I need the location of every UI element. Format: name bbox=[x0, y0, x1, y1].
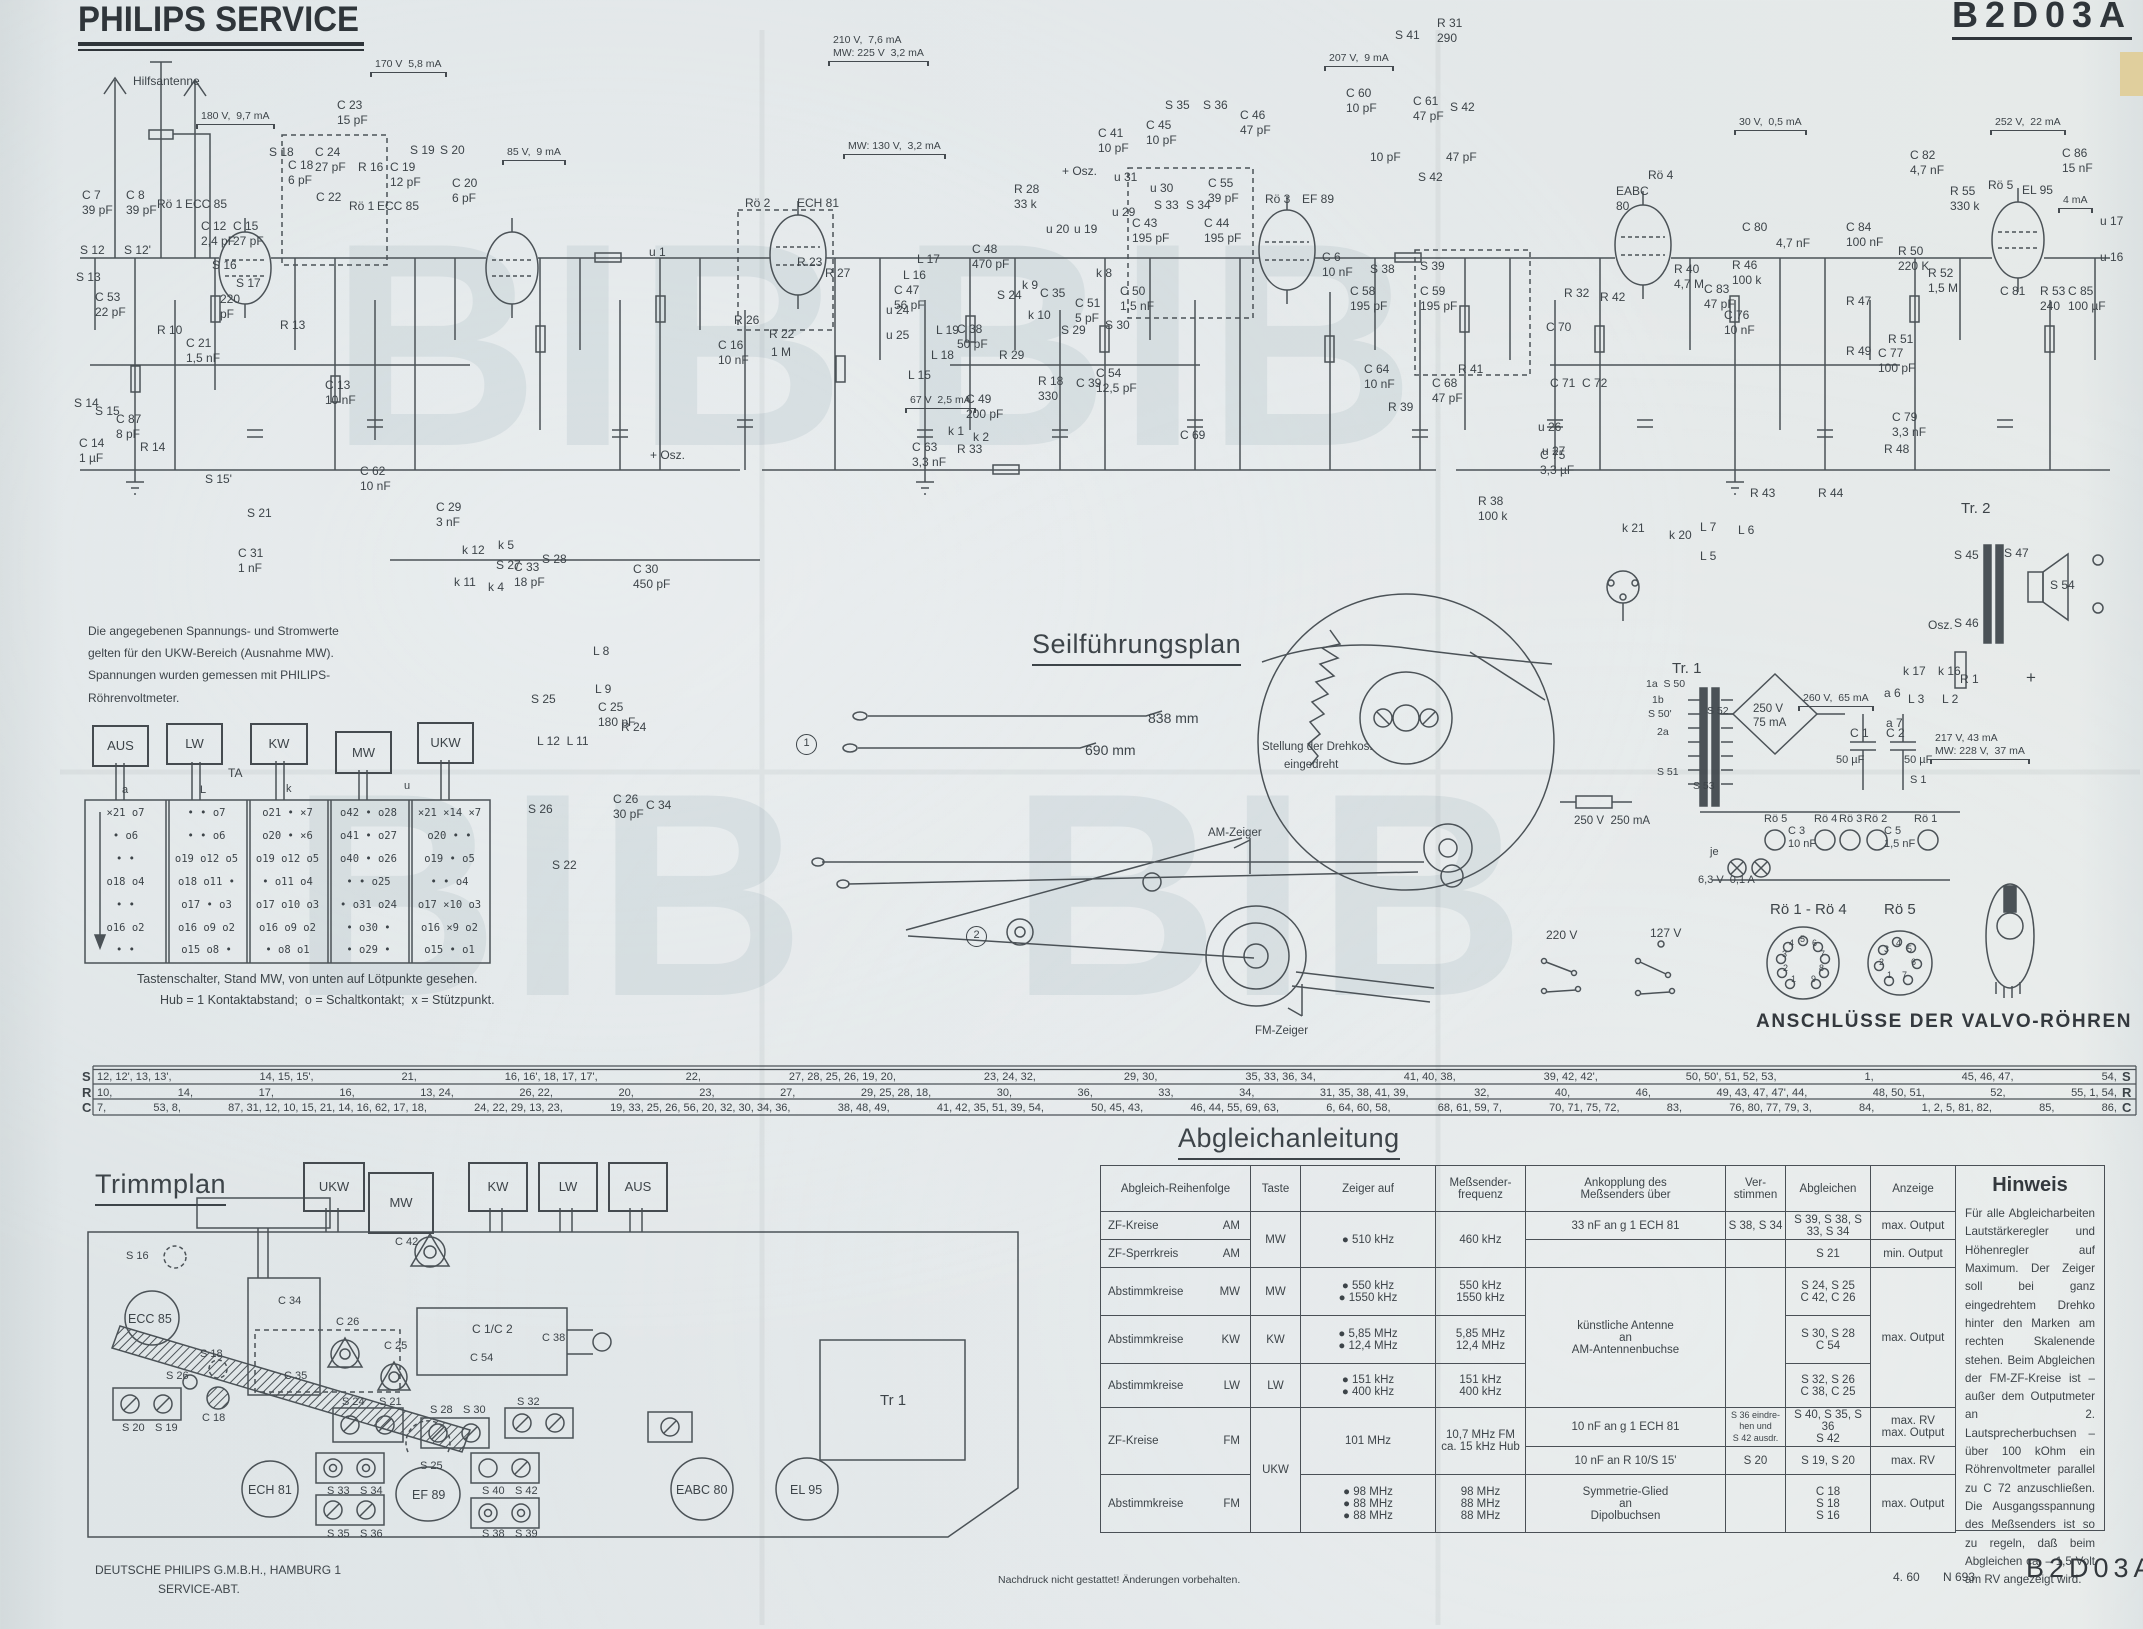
schematic-label: S 33 bbox=[1154, 198, 1179, 213]
schematic-label: S 15' bbox=[205, 472, 232, 487]
schematic-label: C 6010 pF bbox=[1346, 86, 1377, 115]
schematic-label: + Osz. bbox=[1062, 164, 1097, 179]
power-supply-drawing bbox=[1560, 545, 2103, 880]
alignment-table-cell: Anzeige bbox=[1871, 1166, 1956, 1212]
schematic-label: L 17 bbox=[917, 252, 940, 267]
schematic-label: Tr 1 bbox=[880, 1392, 906, 1410]
schematic-label: C 4510 pF bbox=[1146, 118, 1177, 147]
schematic-label: u 24 bbox=[886, 303, 909, 318]
alignment-table-cell bbox=[1726, 1268, 1786, 1408]
schematic-label: R 23 bbox=[797, 255, 822, 270]
schematic-label: 8 bbox=[1819, 963, 1824, 974]
strip-segment: 84, bbox=[1859, 1102, 1874, 1114]
schematic-label: u 25 bbox=[886, 328, 909, 343]
schematic-label: R 50220 K bbox=[1898, 244, 1929, 273]
schematic-label: C 70 bbox=[1546, 320, 1571, 335]
schematic-label: S 12' bbox=[124, 243, 151, 258]
alignment-table-cell: KW bbox=[1251, 1316, 1301, 1364]
schematic-label: Rö 1 bbox=[1914, 813, 1937, 826]
schematic-label: R 29 bbox=[999, 348, 1024, 363]
alignment-table-cell: 10 nF an g 1 ECH 81 bbox=[1526, 1408, 1726, 1447]
schematic-label: S 51 bbox=[1657, 766, 1679, 779]
schematic-label: 690 mm bbox=[1085, 742, 1136, 759]
alignment-table-cell: MW bbox=[1251, 1212, 1301, 1268]
strip-segment: 70, 71, 75, 72, bbox=[1549, 1102, 1619, 1114]
schematic-label: C 515 pF bbox=[1075, 296, 1100, 325]
schematic-label: C 54 bbox=[470, 1352, 493, 1365]
alignment-table-cell: 10,7 MHz FMca. 15 kHz Hub bbox=[1436, 1408, 1526, 1475]
schematic-label: 6 bbox=[1812, 938, 1817, 949]
switch-contact-row: o20 • ×6 bbox=[262, 830, 313, 842]
strip-segment: 48, 50, 51, bbox=[1873, 1087, 1925, 1099]
alignment-table-cell: ● 550 kHz● 1550 kHz bbox=[1301, 1268, 1436, 1316]
footer-company: SERVICE-ABT. bbox=[158, 1582, 240, 1597]
strip-segment: 26, 22, bbox=[519, 1087, 553, 1099]
logo-text: PHILIPS SERVICE bbox=[78, 0, 359, 40]
schematic-label: S 50' bbox=[1648, 708, 1672, 721]
schematic-label: R 32 bbox=[1564, 286, 1589, 301]
trimm-box-aus: AUS bbox=[608, 1162, 668, 1212]
alignment-table-cell bbox=[1726, 1475, 1786, 1533]
strip-segment: 33, bbox=[1158, 1087, 1173, 1099]
schematic-label: L 3 bbox=[1908, 692, 1924, 707]
strip-segment: 49, 43, 47, 47', 44, bbox=[1716, 1087, 1807, 1099]
schematic-label: k bbox=[286, 783, 292, 796]
schematic-label: S 22 bbox=[552, 858, 577, 873]
strip-segment: 1, 2, 5, 81, 82, bbox=[1922, 1102, 1992, 1114]
schematic-label: S 1 bbox=[1910, 774, 1927, 787]
alignment-table-cell: ● 151 kHz● 400 kHz bbox=[1301, 1364, 1436, 1408]
schematic-label: S 52 bbox=[1707, 705, 1729, 718]
strip-segment: 14, 15, 15', bbox=[260, 1071, 314, 1083]
strip-segment: 41, 42, 35, 51, 39, 54, bbox=[937, 1102, 1044, 1114]
switch-contact-row: o17 ×10 o3 bbox=[418, 899, 481, 911]
footer-print-number: N 693 bbox=[1943, 1570, 1975, 1585]
switch-contact-row: o15 • o1 bbox=[424, 944, 475, 956]
schematic-label: 260 V, 65 mA bbox=[1798, 692, 1874, 707]
schematic-label: S 25 bbox=[531, 692, 556, 707]
schematic-label: R 1 bbox=[1960, 672, 1979, 687]
schematic-label: S 19 bbox=[410, 143, 435, 158]
schematic-label: C 38 bbox=[542, 1332, 565, 1345]
schematic-label: L 9 bbox=[595, 682, 611, 697]
schematic-label: C 753,3 µF bbox=[1540, 448, 1574, 477]
schematic-label: C 25 bbox=[384, 1340, 407, 1353]
schematic-label: S 16 bbox=[212, 258, 237, 273]
alignment-table-cell: max. Output bbox=[1871, 1268, 1956, 1408]
schematic-label: 210 V, 7,6 mAMW: 225 V 3,2 mA bbox=[828, 34, 929, 62]
schematic-label: R 47 bbox=[1846, 294, 1871, 309]
schematic-label: C 633,3 nF bbox=[912, 440, 946, 469]
schematic-label: 5 bbox=[1800, 934, 1805, 945]
schematic-label: S 20 bbox=[122, 1422, 145, 1435]
schematic-label: C 1527 pF bbox=[233, 219, 264, 248]
schematic-label: R 46100 k bbox=[1732, 258, 1761, 287]
schematic-label: EL 95 bbox=[2022, 183, 2053, 198]
schematic-label: C 80 bbox=[1742, 220, 1767, 235]
alignment-table-cell: 460 kHz bbox=[1436, 1212, 1526, 1268]
schematic-label: 6 bbox=[1911, 957, 1916, 968]
alignment-table-cell: AbstimmkreiseLW bbox=[1101, 1364, 1251, 1408]
schematic-label: S 41 bbox=[1395, 28, 1420, 43]
schematic-label: R 33 bbox=[957, 442, 982, 457]
schematic-label: a 6 bbox=[1884, 686, 1901, 701]
schematic-label: R 51 bbox=[1888, 332, 1913, 347]
schematic-label: 85 V, 9 mA bbox=[502, 146, 566, 161]
schematic-label: R 44 bbox=[1818, 486, 1843, 501]
alignment-table-cell: ZF-SperrkreisAM bbox=[1101, 1240, 1251, 1268]
band-button-ukw: UKW bbox=[417, 722, 474, 764]
schematic-label: R 22 bbox=[769, 327, 794, 342]
schematic-label: C 26 bbox=[336, 1316, 359, 1329]
schematic-label: R 404,7 M bbox=[1674, 262, 1704, 291]
schematic-label: C 1610 nF bbox=[718, 338, 749, 367]
schematic-label: L 18 bbox=[931, 348, 954, 363]
schematic-label: k 12 bbox=[462, 543, 485, 558]
strip-segment: 50, 50', 51, 52, 53, bbox=[1686, 1071, 1777, 1083]
schematic-label: S 29 bbox=[1061, 323, 1086, 338]
schematic-label: C 8347 pF bbox=[1704, 282, 1735, 311]
alignment-table-cell: 5,85 MHz12,4 MHz bbox=[1436, 1316, 1526, 1364]
switch-caption: Tastenschalter, Stand MW, von unten auf … bbox=[137, 972, 478, 987]
strip-segment: 34, bbox=[1239, 1087, 1254, 1099]
strip-segment: 10, bbox=[97, 1087, 112, 1099]
strip-segment: 13, 24, bbox=[420, 1087, 454, 1099]
alignment-table-cell: künstliche AntenneanAM-Antennenbuchse bbox=[1526, 1268, 1726, 1408]
switch-contact-row: o41 • o27 bbox=[340, 830, 397, 842]
schematic-label: 207 V, 9 mA bbox=[1324, 52, 1394, 67]
schematic-label: C 141 µF bbox=[79, 436, 104, 465]
schematic-label: C 739 pF bbox=[82, 188, 113, 217]
strip-segment: 20, bbox=[618, 1087, 633, 1099]
alignment-table-cell bbox=[1526, 1240, 1726, 1268]
schematic-label: C 211,5 nF bbox=[186, 336, 220, 365]
schematic-label: k 17 bbox=[1903, 664, 1926, 679]
schematic-label: C 22 bbox=[316, 190, 341, 205]
alignment-table-cell: S 19, S 20 bbox=[1786, 1447, 1871, 1475]
switch-contact-row: • • o7 bbox=[188, 807, 226, 819]
schematic-label: S 45 bbox=[1954, 548, 1979, 563]
schematic-label: 3 bbox=[1782, 949, 1787, 960]
strip-segment: 35, 33, 36, 34, bbox=[1245, 1071, 1315, 1083]
alignment-table-cell: ● 98 MHz● 88 MHz● 88 MHz bbox=[1301, 1475, 1436, 1533]
switch-contact-row: • • bbox=[116, 899, 135, 911]
alignment-table-cell: Symmetrie-GliedanDipolbuchsen bbox=[1526, 1475, 1726, 1533]
schematic-label: 1 M bbox=[771, 345, 791, 360]
schematic-label: S 36 bbox=[360, 1528, 383, 1541]
schematic-label: EF 89 bbox=[412, 1488, 445, 1503]
schematic-label: 6,3 V 0,1 A bbox=[1698, 874, 1755, 887]
schematic-label: S 25 bbox=[420, 1460, 443, 1473]
schematic-label: S 38 bbox=[1370, 262, 1395, 277]
schematic-label: R 38100 k bbox=[1478, 494, 1507, 523]
schematic-label: C 5539 pF bbox=[1208, 176, 1239, 205]
band-button-aus: AUS bbox=[92, 725, 149, 767]
alignment-table-cell: max. Output bbox=[1871, 1475, 1956, 1533]
alignment-table-cell: AbstimmkreiseFM bbox=[1101, 1475, 1251, 1533]
schematic-label: k 11 bbox=[454, 575, 476, 590]
schematic-label: C 59195 pF bbox=[1420, 284, 1457, 313]
strip-key-right: S bbox=[2122, 1069, 2131, 1084]
schematic-label: S 42 bbox=[1418, 170, 1443, 185]
schematic-label: 47 pF bbox=[1446, 150, 1477, 165]
schematic-label: 1 bbox=[1887, 970, 1892, 981]
schematic-label: C 81 bbox=[2000, 284, 2025, 299]
schematic-label: S 35 bbox=[1165, 98, 1190, 113]
schematic-label: C 72 bbox=[1582, 376, 1607, 391]
schematic-label: 2 bbox=[966, 926, 987, 947]
strip-segment: 16, 16', 18, 17, 17', bbox=[505, 1071, 598, 1083]
alignment-table-cell: S 20 bbox=[1726, 1447, 1786, 1475]
alignment-table-cell: S 32, S 26C 38, C 25 bbox=[1786, 1364, 1871, 1408]
schematic-label: k 5 bbox=[498, 538, 514, 553]
schematic-label: ECH 81 bbox=[248, 1483, 292, 1498]
schematic-label: TA bbox=[228, 766, 242, 781]
strip-segment: 14, bbox=[178, 1087, 193, 1099]
alignment-table-cell: ● 5,85 MHz● 12,4 MHz bbox=[1301, 1316, 1436, 1364]
alignment-table-cell: 151 kHz400 kHz bbox=[1436, 1364, 1526, 1408]
alignment-table-cell: max. Output bbox=[1871, 1212, 1956, 1240]
schematic-label: C 793,3 nF bbox=[1892, 410, 1926, 439]
strip-segment: 83, bbox=[1667, 1102, 1682, 1114]
strip-segment: 23, 24, 32, bbox=[984, 1071, 1036, 1083]
schematic-label: C 34 bbox=[646, 798, 671, 813]
schematic-label: S 18 bbox=[200, 1348, 223, 1361]
schematic-label: R 13 bbox=[280, 318, 305, 333]
schematic-label: Rö 2 bbox=[745, 196, 770, 211]
schematic-label: L 5 bbox=[1700, 549, 1716, 564]
switch-contact-row: • • bbox=[116, 944, 135, 956]
strip-segment: 32, bbox=[1474, 1087, 1489, 1099]
switch-contact-row: • o31 o24 bbox=[340, 899, 397, 911]
section-title-seilfuehrungsplan: Seilführungsplan bbox=[1032, 628, 1241, 666]
switch-contact-row: • • o25 bbox=[346, 876, 390, 888]
schematic-label: S 38 bbox=[482, 1528, 505, 1541]
schematic-label: R 48 bbox=[1884, 442, 1909, 457]
switch-contact-row: ×21 o7 bbox=[107, 807, 145, 819]
schematic-label: a bbox=[122, 784, 128, 797]
schematic-label: R 31290 bbox=[1437, 16, 1462, 45]
switch-contact-row: o19 • o5 bbox=[424, 853, 475, 865]
schematic-label: S 36 bbox=[1203, 98, 1228, 113]
alignment-table-cell: max. RV bbox=[1871, 1447, 1956, 1475]
strip-segment: 16, bbox=[339, 1087, 354, 1099]
schematic-label: Tr. 2 bbox=[1961, 500, 1990, 518]
strip-segment: 55, 1, 54, bbox=[2071, 1087, 2117, 1099]
schematic-label: R 41 bbox=[1458, 362, 1483, 377]
alignment-table-cell: 33 nF an g 1 ECH 81 bbox=[1526, 1212, 1726, 1240]
schematic-label: S 16 bbox=[126, 1250, 149, 1263]
switch-contact-panel: ×21 o7• o6• •o18 o4• •o16 o2• •• • o7• •… bbox=[85, 802, 490, 962]
schematic-label: C 18 bbox=[202, 1412, 225, 1425]
schematic-label: 4 bbox=[1789, 938, 1794, 949]
footer-company: DEUTSCHE PHILIPS G.M.B.H., HAMBURG 1 bbox=[95, 1563, 341, 1578]
strip-segment: 21, bbox=[402, 1071, 417, 1083]
schematic-label: C 58195 pF bbox=[1350, 284, 1387, 313]
schematic-label: C 2 bbox=[1886, 726, 1905, 741]
switch-contact-row: o19 o12 o5 bbox=[256, 853, 319, 865]
tube-socket-group-label: Rö 5 bbox=[1884, 901, 1916, 919]
alignment-table-cell: Abgleich-Reihenfolge bbox=[1101, 1166, 1251, 1212]
antenna-icon bbox=[104, 62, 210, 258]
schematic-label: S 26 bbox=[166, 1370, 189, 1383]
strip-segment: 41, 40, 38, bbox=[1404, 1071, 1456, 1083]
service-manual-page: { "header": { "logo": "PHILIPS SERVICE",… bbox=[0, 0, 2143, 1629]
schematic-label: S 34 bbox=[1186, 198, 1211, 213]
switch-contact-column: • • o7• • o6o19 o12 o5o18 o11 •o17 • o3o… bbox=[166, 802, 247, 962]
alignment-table-cell: ZF-KreiseAM bbox=[1101, 1212, 1251, 1240]
strip-segment: 40, bbox=[1555, 1087, 1570, 1099]
band-button-mw: MW bbox=[335, 731, 392, 774]
schematic-label: S 12 bbox=[80, 243, 105, 258]
doc-code-bottom: B2D03A bbox=[2026, 1552, 2143, 1585]
schematic-label: C 6147 pF bbox=[1413, 94, 1444, 123]
schematic-label: C 5412,5 pF bbox=[1096, 366, 1137, 395]
schematic-label: k 20 bbox=[1669, 528, 1692, 543]
strip-key-right: R bbox=[2122, 1085, 2131, 1100]
schematic-label: 9 bbox=[1811, 974, 1816, 985]
schematic-label: C 824,7 nF bbox=[1910, 148, 1944, 177]
schematic-label: k 4 bbox=[488, 580, 504, 595]
schematic-label: Tr. 1 bbox=[1672, 660, 1701, 678]
schematic-label: S 20 bbox=[440, 143, 465, 158]
schematic-label: C 84100 nF bbox=[1846, 220, 1883, 249]
schematic-label: L bbox=[200, 784, 206, 797]
alignment-table-cell: 98 MHz88 MHz88 MHz bbox=[1436, 1475, 1526, 1533]
schematic-label: L 8 bbox=[593, 644, 609, 659]
schematic-label: R 27 bbox=[825, 266, 850, 281]
switch-contact-row: • • o4 bbox=[431, 876, 469, 888]
schematic-label: C 4647 pF bbox=[1240, 108, 1271, 137]
schematic-label: S 19 bbox=[155, 1422, 178, 1435]
section-title-trimmplan: Trimmplan bbox=[95, 1168, 226, 1206]
switch-contact-row: • o29 • bbox=[346, 944, 390, 956]
schematic-label: 170 V 5,8 mA bbox=[370, 58, 447, 73]
schematic-label: S 30 bbox=[463, 1404, 486, 1417]
schematic-label: 2 bbox=[1783, 963, 1788, 974]
schematic-label: FM-Zeiger bbox=[1255, 1024, 1308, 1038]
schematic-label: u bbox=[404, 780, 410, 793]
schematic-label: EL 95 bbox=[790, 1483, 822, 1498]
alignment-table-cell: Ankopplung desMeßsenders über bbox=[1526, 1166, 1726, 1212]
switch-contact-row: o16 o9 o2 bbox=[259, 922, 316, 934]
schematic-label: C 1 bbox=[1850, 726, 1869, 741]
alignment-table-cell: S 40, S 35, S 36S 42 bbox=[1786, 1408, 1871, 1447]
switch-contact-row: • o6 bbox=[113, 830, 138, 842]
schematic-label: u 20 bbox=[1046, 222, 1069, 237]
switch-contact-column: ×21 o7• o6• •o18 o4• •o16 o2• • bbox=[85, 802, 166, 962]
logo-underline bbox=[78, 49, 364, 51]
schematic-label: 2 bbox=[1879, 957, 1884, 968]
schematic-label: C 71 bbox=[1550, 376, 1575, 391]
schematic-label: S 53 bbox=[1693, 780, 1715, 793]
alignment-table: Abgleich-ReihenfolgeTasteZeiger aufMeßse… bbox=[1100, 1165, 1956, 1533]
valvo-caption: ANSCHLÜSSE DER VALVO-RÖHREN bbox=[1756, 1010, 2132, 1033]
schematic-label: C 293 nF bbox=[436, 500, 461, 529]
strip-row-s: 12, 12', 13, 13',14, 15, 15',21,16, 16',… bbox=[97, 1069, 2117, 1084]
alignment-table-cell: S 38, S 34 bbox=[1726, 1212, 1786, 1240]
schematic-label: S 17 bbox=[236, 276, 261, 291]
schematic-label: R 16 bbox=[358, 160, 383, 175]
schematic-label: L 2 bbox=[1942, 692, 1958, 707]
strip-segment: 7, bbox=[97, 1102, 106, 1114]
schematic-label: 30 V, 0,5 mA bbox=[1734, 116, 1807, 131]
schematic-label: L 12 L 11 bbox=[537, 734, 589, 749]
strip-key-left: R bbox=[82, 1085, 91, 1100]
schematic-label: EF 89 bbox=[1302, 192, 1334, 207]
strip-key-right: C bbox=[2122, 1100, 2131, 1115]
strip-segment: 29, 30, bbox=[1124, 1071, 1158, 1083]
strip-segment: 50, 45, 43, bbox=[1091, 1102, 1143, 1114]
strip-segment: 6, 64, 60, 58, bbox=[1326, 1102, 1390, 1114]
schematic-label: 7 bbox=[1820, 949, 1825, 960]
schematic-label: AM-Zeiger bbox=[1208, 826, 1262, 840]
schematic-label: Rö 1 bbox=[157, 197, 182, 212]
schematic-label: ECC 85 bbox=[128, 1312, 172, 1327]
resistor-symbols bbox=[131, 253, 2054, 474]
schematic-label: C 35 bbox=[284, 1370, 307, 1383]
switch-contact-row: • • o6 bbox=[188, 830, 226, 842]
switch-contact-row: o16 ×9 o2 bbox=[421, 922, 478, 934]
switch-contact-row: o17 o10 o3 bbox=[256, 899, 319, 911]
schematic-label: S 34 bbox=[360, 1485, 383, 1498]
strip-segment: 76, 80, 77, 79, 3, bbox=[1729, 1102, 1812, 1114]
schematic-label: + bbox=[2026, 668, 2036, 689]
schematic-label: k 8 bbox=[1096, 266, 1112, 281]
schematic-label: L 16 bbox=[903, 268, 926, 283]
alignment-table-cell: S 30, S 28C 54 bbox=[1786, 1316, 1871, 1364]
strip-segment: 68, 61, 59, 7, bbox=[1438, 1102, 1502, 1114]
schematic-label: 220 V bbox=[1546, 928, 1577, 943]
trimmplan-drawing bbox=[88, 1198, 1018, 1537]
strip-segment: 46, bbox=[1636, 1087, 1651, 1099]
schematic-label: C 77100 pF bbox=[1878, 346, 1915, 375]
schematic-label: C 206 pF bbox=[452, 176, 477, 205]
switch-contact-row: o40 • o26 bbox=[340, 853, 397, 865]
schematic-label: C 6847 pF bbox=[1432, 376, 1463, 405]
alignment-table-cell: Zeiger auf bbox=[1301, 1166, 1436, 1212]
schematic-label: Rö 4 bbox=[1648, 168, 1673, 183]
switch-contact-row: o19 o12 o5 bbox=[175, 853, 238, 865]
schematic-label: 217 V, 43 mAMW: 228 V, 37 mA bbox=[1930, 732, 2030, 760]
schematic-label: L 7 bbox=[1700, 520, 1716, 535]
schematic-label: Rö 5 bbox=[1988, 178, 2013, 193]
schematic-label: R 2833 k bbox=[1014, 182, 1039, 211]
strip-segment: 31, 35, 38, 41, 39, bbox=[1320, 1087, 1409, 1099]
schematic-label: R 521,5 M bbox=[1928, 266, 1958, 295]
schematic-label: S 28 bbox=[542, 552, 567, 567]
schematic-label: R 18330 bbox=[1038, 374, 1063, 403]
strip-segment: 19, 33, 25, 26, 56, 20, 32, 30, 34, 36, bbox=[610, 1102, 790, 1114]
schematic-label: S 39 bbox=[515, 1528, 538, 1541]
schematic-label: S 30 bbox=[1105, 318, 1130, 333]
schematic-label: Rö 1 bbox=[349, 199, 374, 214]
schematic-label: C 610 nF bbox=[1322, 250, 1353, 279]
philips-service-logo: PHILIPS SERVICE bbox=[78, 0, 377, 51]
schematic-label: C 501,5 nF bbox=[1120, 284, 1154, 313]
strip-segment: 1, bbox=[1864, 1071, 1873, 1083]
alignment-table-cell: LW bbox=[1251, 1364, 1301, 1408]
schematic-label: S 26 bbox=[528, 802, 553, 817]
schematic-label: C 1/C 2 bbox=[472, 1322, 513, 1337]
schematic-label: R 42 bbox=[1600, 290, 1625, 305]
switch-contact-row: o15 o8 • bbox=[181, 944, 232, 956]
strip-segment: 29, 25, 28, 18, bbox=[861, 1087, 931, 1099]
schematic-label: 1 bbox=[796, 734, 817, 755]
schematic-label: C 186 pF bbox=[288, 158, 313, 187]
schematic-label: R 49 bbox=[1846, 344, 1871, 359]
alignment-table-cell: 10 nF an R 10/S 15' bbox=[1526, 1447, 1726, 1475]
